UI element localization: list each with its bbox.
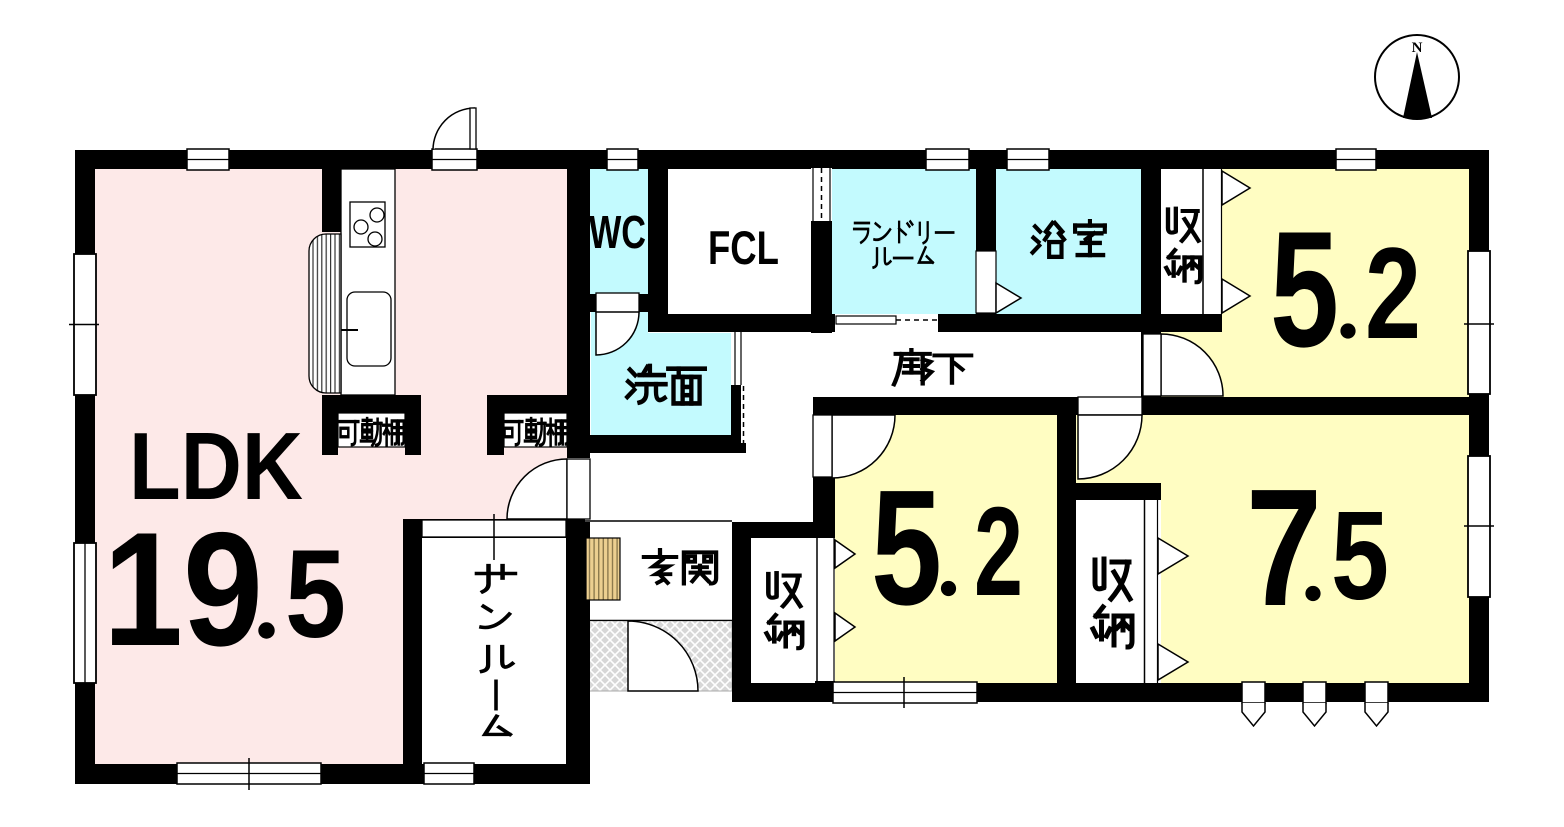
- svg-text:7: 7: [1246, 455, 1322, 641]
- svg-text:WC: WC: [589, 206, 646, 258]
- svg-text:FCL: FCL: [708, 221, 779, 274]
- svg-text:5: 5: [1270, 197, 1339, 381]
- svg-text:19: 19: [103, 499, 263, 680]
- svg-text:N: N: [1412, 40, 1423, 56]
- svg-text:5: 5: [1331, 485, 1389, 626]
- svg-text:2: 2: [974, 481, 1023, 622]
- svg-text:5: 5: [285, 525, 346, 664]
- svg-text:5: 5: [871, 456, 942, 639]
- svg-text:2: 2: [1365, 220, 1421, 366]
